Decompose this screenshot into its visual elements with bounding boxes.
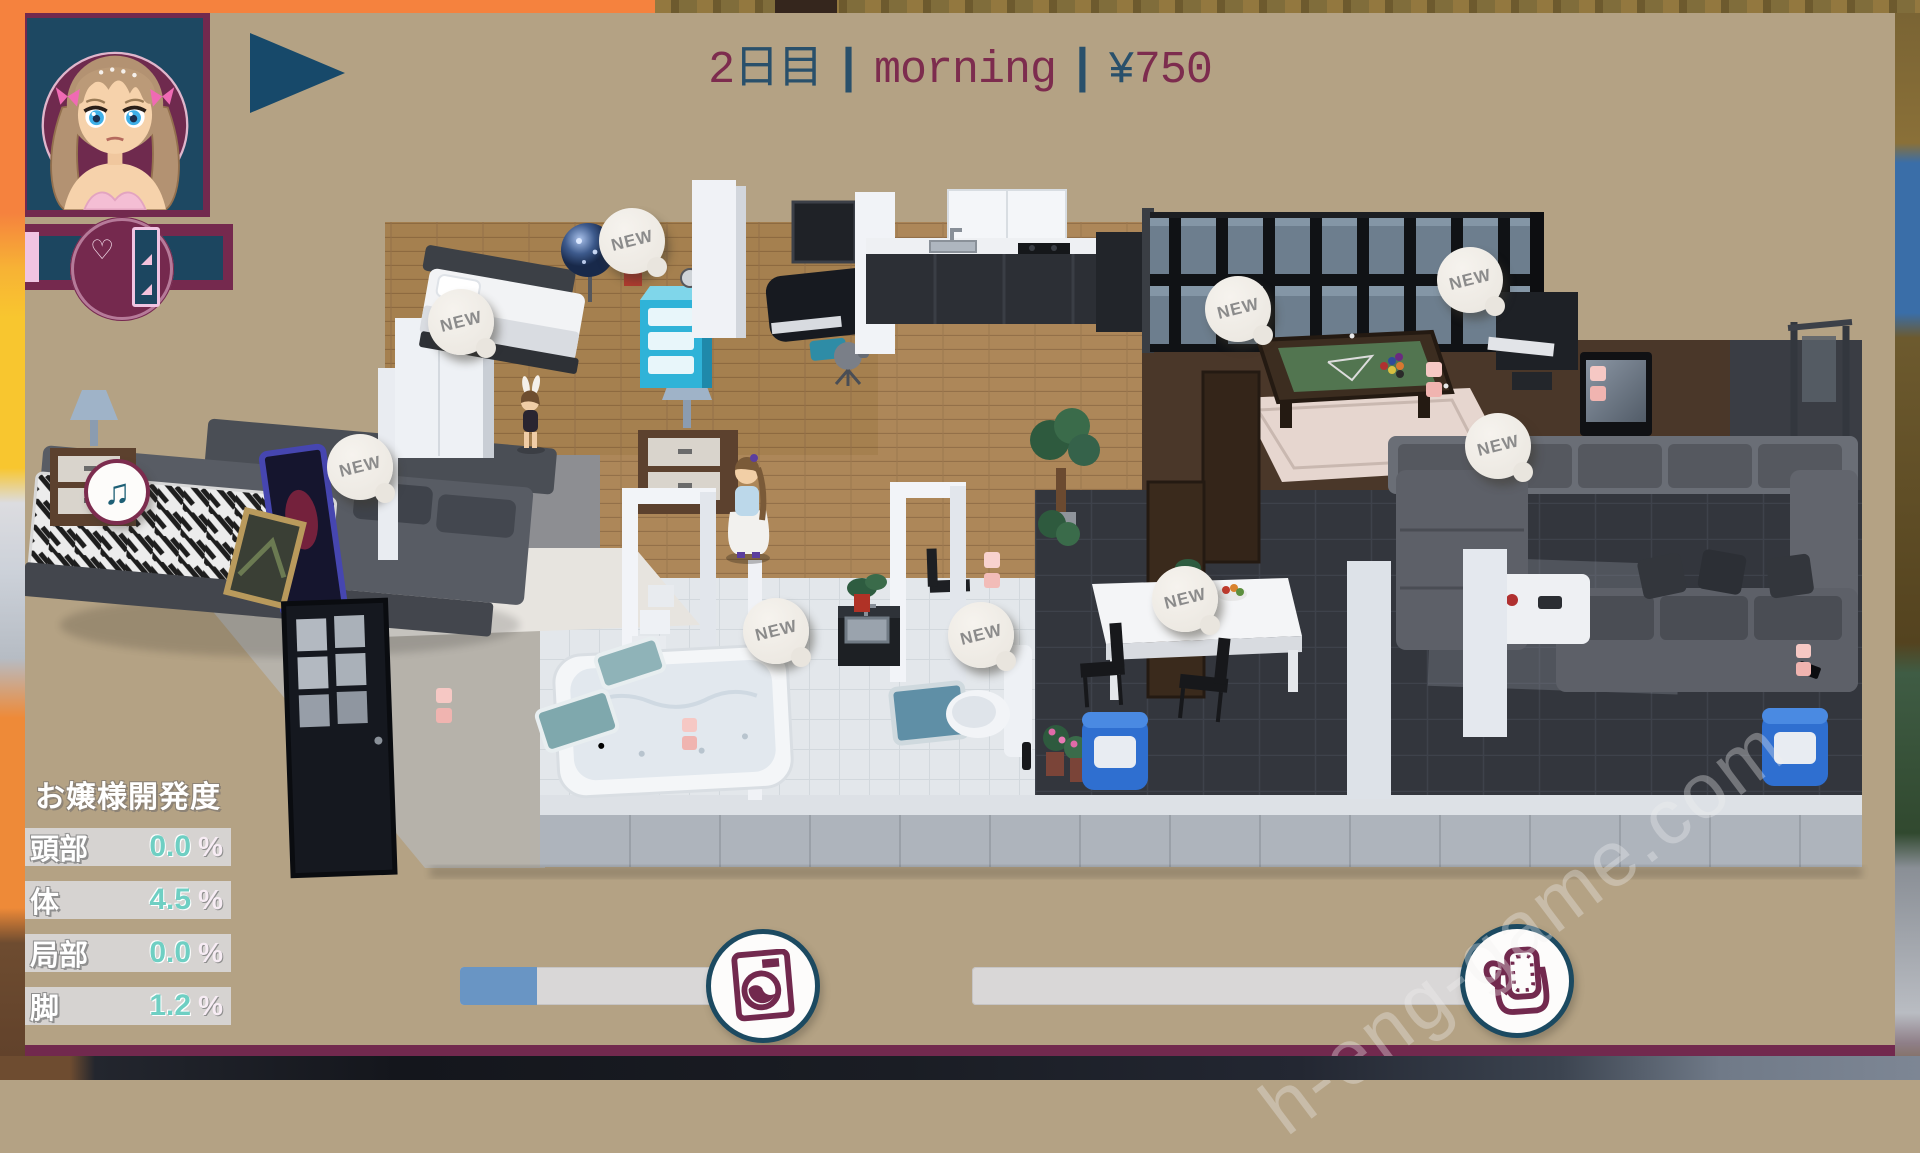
new-badge-label: NEW <box>1475 431 1521 461</box>
heart-icon: ♡ <box>90 235 114 266</box>
bed-pillow <box>436 494 517 539</box>
stove <box>1018 243 1070 254</box>
entrance-door[interactable] <box>284 600 395 875</box>
laundry-button[interactable] <box>706 929 820 1043</box>
new-badge-label: NEW <box>609 226 655 256</box>
pillar-dark <box>1203 372 1259 562</box>
stat-value: 0.0 <box>149 830 191 863</box>
photo-border-notch <box>775 0 837 13</box>
day-suffix: 日目 <box>734 45 822 96</box>
lamp <box>70 390 118 420</box>
affection-gauge[interactable]: ♡ <box>70 217 174 321</box>
currency-symbol: ¥ <box>1108 45 1134 96</box>
platform-front-white <box>540 795 1862 815</box>
new-item-badge[interactable]: NEW <box>743 598 809 664</box>
stat-label: 脚 <box>30 985 59 1027</box>
stat-row: 頭部0.0% <box>25 828 231 866</box>
wall-panel-dark <box>793 202 855 262</box>
stats-title: お嬢様開発度 <box>25 772 231 816</box>
new-item-badge[interactable]: NEW <box>948 602 1014 668</box>
new-item-badge[interactable]: NEW <box>599 208 665 274</box>
photo-border-bottom <box>0 1056 1920 1080</box>
stat-label: 頭部 <box>30 826 88 868</box>
stat-value: 4.5 <box>149 883 191 916</box>
new-item-badge[interactable]: NEW <box>428 289 494 355</box>
day-number: 2 <box>708 45 734 96</box>
stat-row: 脚1.2% <box>25 987 231 1025</box>
stat-unit: % <box>198 831 223 862</box>
new-item-badge[interactable]: NEW <box>1152 566 1218 632</box>
stat-label: 局部 <box>30 932 88 974</box>
new-badge-label: NEW <box>958 620 1004 650</box>
partition-white <box>1347 561 1391 799</box>
tall-unit <box>1096 232 1142 332</box>
separator: | <box>1056 43 1108 97</box>
new-badge-label: NEW <box>1215 294 1261 324</box>
new-item-badge[interactable]: NEW <box>1465 413 1531 479</box>
new-badge-label: NEW <box>753 616 799 646</box>
photo-border-top-right <box>655 0 1920 13</box>
stats-rows: 頭部0.0%体4.5%局部0.0%脚1.2% <box>25 828 231 1025</box>
music-badge[interactable]: ♫ <box>84 459 150 525</box>
game-screen: { "hud": { "day": { "number": "2", "suff… <box>0 0 1920 1080</box>
new-item-badge[interactable]: NEW <box>1437 247 1503 313</box>
armchair-blue[interactable] <box>1082 712 1148 790</box>
stat-value: 1.2 <box>149 989 191 1022</box>
new-item-badge[interactable]: NEW <box>1205 276 1271 342</box>
new-badge-label: NEW <box>1447 265 1493 295</box>
washing-machine-icon <box>726 949 800 1023</box>
stat-value: 0.0 <box>149 936 191 969</box>
status-bar: 2日目|morning|¥750 <box>0 30 1920 97</box>
bag-icon <box>1480 944 1554 1018</box>
platform-front-side <box>540 815 1862 867</box>
gauge-pink-tab <box>25 232 39 282</box>
stat-unit: % <box>198 884 223 915</box>
photo-border-left <box>0 13 25 1080</box>
sink <box>930 241 976 252</box>
armchair-blue[interactable] <box>1762 708 1828 786</box>
new-badge-label: NEW <box>1162 584 1208 614</box>
stat-unit: % <box>198 990 223 1021</box>
new-item-badge[interactable]: NEW <box>327 434 393 500</box>
time-of-day: morning <box>874 45 1056 96</box>
game-bottom-divider <box>25 1045 1895 1056</box>
stat-row: 体4.5% <box>25 881 231 919</box>
new-badge-label: NEW <box>337 452 383 482</box>
partition-white <box>1463 549 1507 737</box>
stat-row: 局部0.0% <box>25 934 231 972</box>
money-amount: 750 <box>1134 45 1212 96</box>
music-note-icon: ♫ <box>104 474 131 510</box>
photo-border-top-left <box>0 0 655 13</box>
photo-border-right <box>1895 13 1920 1080</box>
bag-progress-bar <box>972 967 1490 1005</box>
stat-unit: % <box>198 937 223 968</box>
laundry-progress-fill <box>460 967 537 1005</box>
house-scene <box>25 12 1895 1056</box>
development-stats-panel: お嬢様開発度 頭部0.0%体4.5%局部0.0%脚1.2% <box>25 772 231 1040</box>
wall-column <box>692 180 736 338</box>
gauge-meter <box>132 227 160 307</box>
new-badge-label: NEW <box>438 307 484 337</box>
bag-button[interactable] <box>1460 924 1574 1038</box>
stat-label: 体 <box>30 879 59 921</box>
separator: | <box>822 43 874 97</box>
